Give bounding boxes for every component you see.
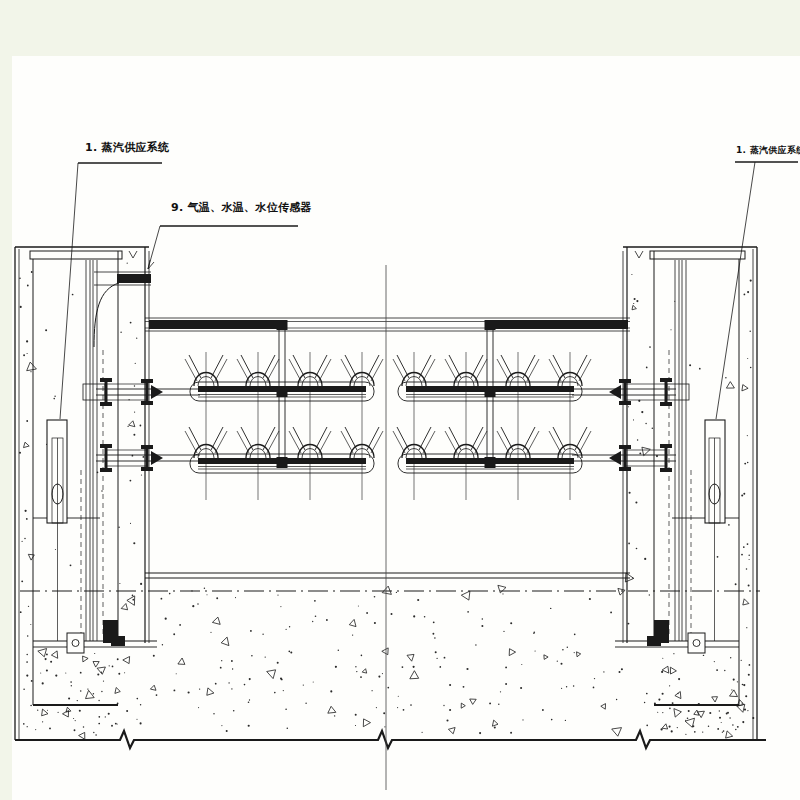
label-sensors: 9. 气温、水温、水位传感器 bbox=[171, 200, 312, 215]
curved-pipe bbox=[94, 283, 119, 347]
weld-notch-left bbox=[129, 251, 137, 258]
ground-line bbox=[15, 731, 766, 748]
sensor-conduit bbox=[117, 274, 151, 283]
right-top-slab bbox=[650, 251, 745, 259]
concrete-hatch bbox=[19, 263, 754, 740]
steam-header-left bbox=[149, 320, 285, 329]
steam-unit-right bbox=[705, 420, 725, 523]
spray-tank bbox=[145, 318, 630, 578]
valve-right bbox=[688, 633, 705, 653]
left-top-slab bbox=[30, 251, 122, 259]
flow-arrow bbox=[609, 385, 621, 399]
label-steam-supply-right: 1. 蒸汽供应系统 bbox=[736, 144, 800, 157]
left-chamber bbox=[15, 247, 157, 740]
valve-left bbox=[67, 633, 84, 653]
flow-arrow bbox=[151, 385, 163, 399]
flow-arrow bbox=[609, 451, 621, 465]
engineering-drawing bbox=[0, 0, 800, 800]
steam-header-right bbox=[487, 320, 628, 329]
flow-arrow bbox=[151, 451, 163, 465]
label-steam-supply-left: 1. 蒸汽供应系统 bbox=[85, 140, 169, 155]
drawing-sheet: 1. 蒸汽供应系统 9. 气温、水温、水位传感器 1. 蒸汽供应系统 bbox=[0, 0, 800, 800]
nozzle-manifolds bbox=[185, 320, 591, 500]
steam-unit-left bbox=[47, 420, 67, 523]
weld-notch-right bbox=[635, 251, 643, 258]
right-chamber bbox=[615, 247, 757, 740]
